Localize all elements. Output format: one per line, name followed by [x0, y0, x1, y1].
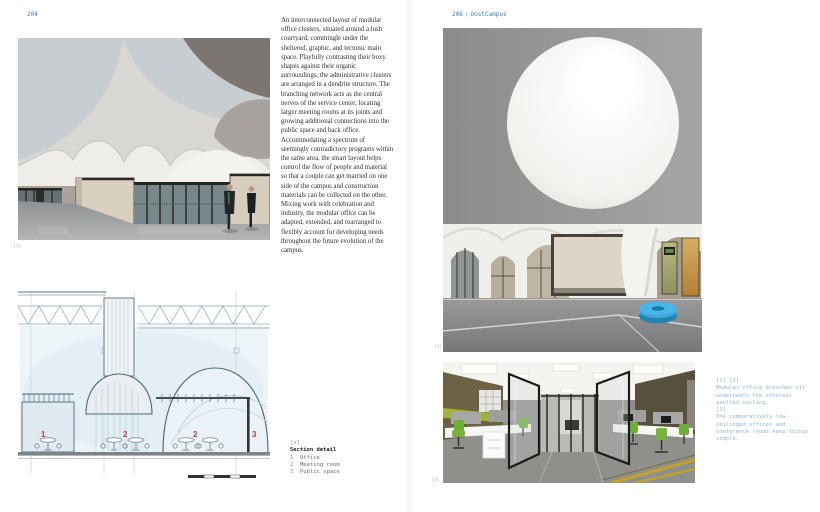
office-module-glass [134, 182, 230, 226]
backlit-panel-amber [682, 238, 699, 296]
photo-vaulted-hall-offices [18, 38, 270, 240]
legend-num: 2 [290, 462, 300, 469]
project-name: OostCampus [470, 11, 506, 18]
drawing-caption-mark: [a] [290, 440, 340, 447]
legend-label: Public space [300, 469, 340, 475]
photo-caption: [1] [2] Modular office branches sit unde… [716, 378, 817, 444]
drawing-number-meeting-2: 2 [193, 430, 198, 439]
caption-refs-2: [3] [716, 407, 817, 414]
legend-label: Meeting room [300, 462, 340, 468]
page-number-right: 206 [452, 11, 463, 18]
caption-refs-1: [1] [2] [716, 378, 817, 385]
figure-label-3: [3] [431, 478, 439, 483]
drawing-number-meeting-1: 2 [123, 430, 128, 439]
legend-num: 1 [290, 455, 300, 462]
legend-label: Office [300, 455, 320, 461]
legend-row: 3Public space [290, 469, 340, 476]
arch-opening-2 [491, 256, 515, 298]
photo-office-interior [443, 362, 695, 483]
page-gutter [405, 0, 415, 512]
pivot-glass-door-right [597, 372, 629, 464]
section-drawing: 1 2 2 3 [18, 282, 270, 482]
arch-opening-right [657, 237, 701, 298]
pivot-glass-door-left [509, 374, 539, 468]
drawing-number-public: 3 [252, 430, 257, 439]
drawing-caption: [a] Section detail 1Office 2Meeting room… [290, 440, 340, 476]
blue-round-pouf [639, 302, 677, 324]
legend-num: 3 [290, 469, 300, 476]
legend-row: 2Meeting room [290, 462, 340, 469]
photo-oculus-atrium [443, 28, 702, 352]
scale-bar [188, 475, 256, 478]
caption-text-1: Modular office branches sit underneath t… [716, 385, 817, 407]
body-text-column: An interconnected layout of modular offi… [281, 16, 394, 255]
arch-opening-left [451, 248, 479, 298]
figure-label-2: [2] [434, 345, 442, 350]
corridor-glazing [541, 394, 599, 452]
screen-module [551, 234, 629, 296]
caption-text-2: The comparatively low-ceilinged offices … [716, 414, 817, 443]
shelf-unit [479, 390, 501, 412]
oculus-skylight [578, 52, 634, 108]
drawing-caption-title: Section detail [290, 447, 340, 454]
header-separator: | [465, 11, 469, 18]
page-number-left: 204 [27, 11, 38, 18]
figure-label-1: [1] [13, 244, 21, 249]
legend-row: 1Office [290, 455, 340, 462]
drawing-number-office: 1 [41, 430, 46, 439]
page-header-right: 206|OostCampus [452, 11, 507, 18]
book-spread: 204 [0, 0, 820, 512]
